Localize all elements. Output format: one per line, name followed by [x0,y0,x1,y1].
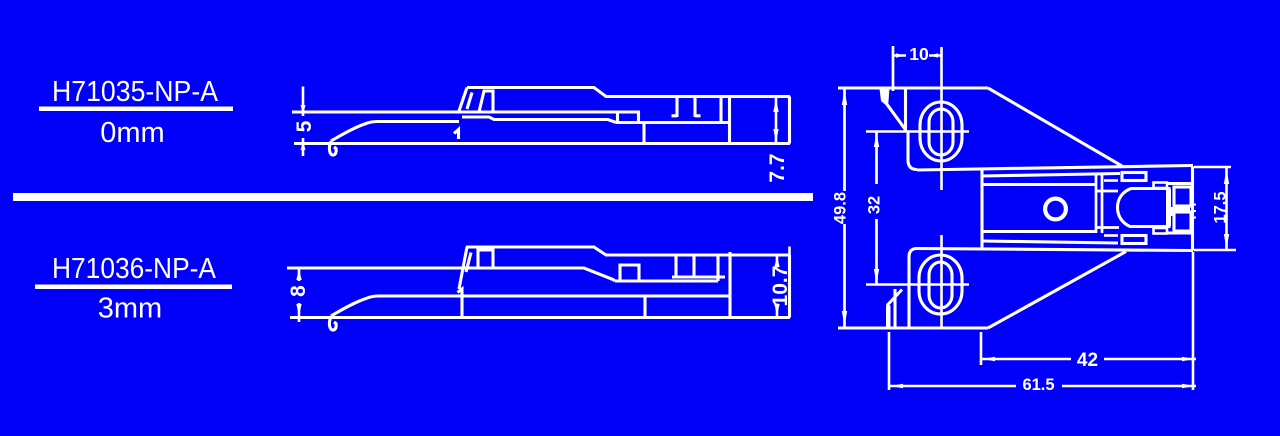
svg-text:H71036-NP-A: H71036-NP-A [52,253,217,285]
svg-text:17.5: 17.5 [1212,191,1230,223]
svg-text:3mm: 3mm [98,293,162,325]
svg-text:0mm: 0mm [100,117,164,149]
svg-text:7.7: 7.7 [766,153,789,182]
svg-text:10.7: 10.7 [769,266,792,307]
svg-text:42: 42 [1077,350,1098,371]
svg-text:49.8: 49.8 [832,192,850,224]
svg-text:5: 5 [293,120,316,132]
svg-text:61.5: 61.5 [1022,376,1054,394]
svg-text:32: 32 [866,196,884,214]
svg-text:8: 8 [287,285,310,297]
svg-text:10: 10 [909,44,929,64]
svg-text:H71035-NP-A: H71035-NP-A [52,76,219,108]
